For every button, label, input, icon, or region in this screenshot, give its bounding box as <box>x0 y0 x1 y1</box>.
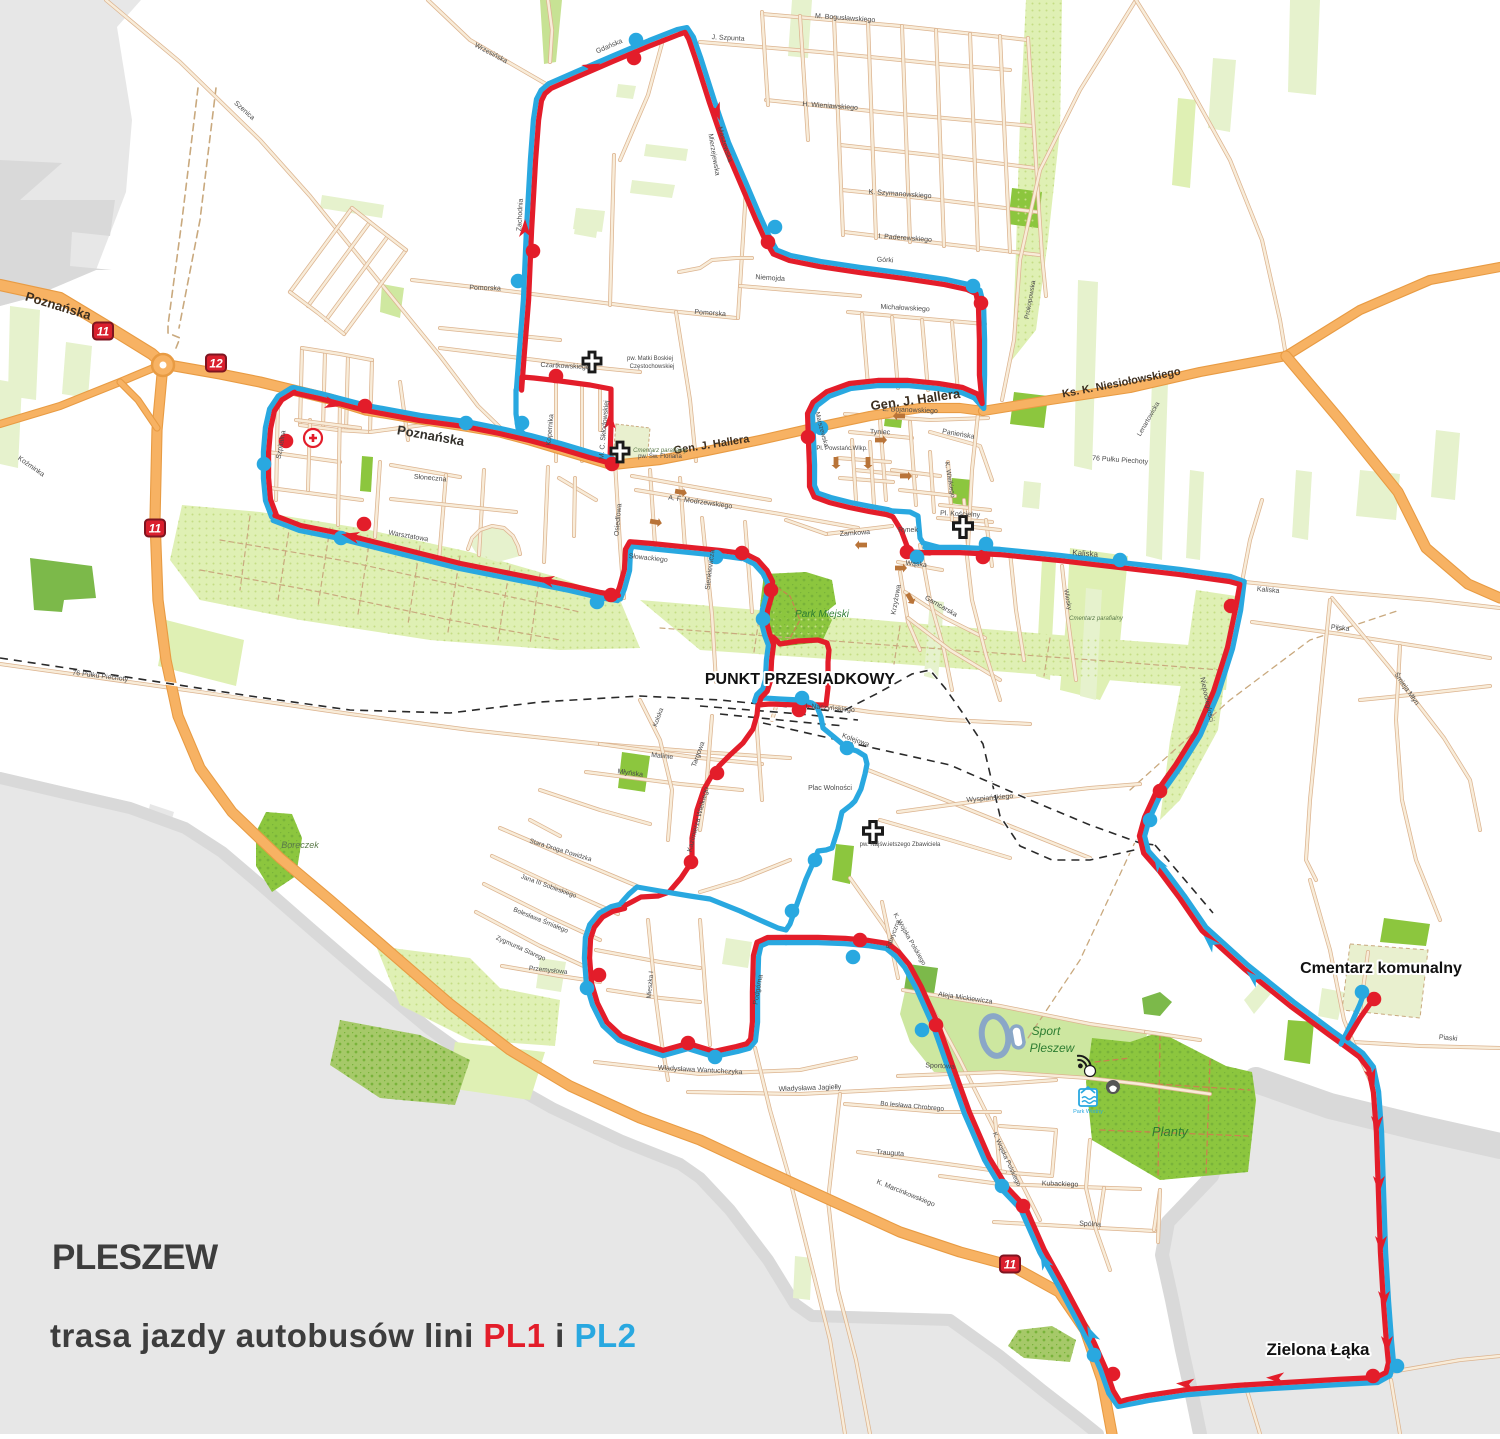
svg-text:Plac Wolności: Plac Wolności <box>808 785 852 792</box>
svg-text:Planty: Planty <box>1152 1124 1190 1139</box>
svg-text:Górki: Górki <box>877 257 895 265</box>
svg-text:Zielona Łąka: Zielona Łąka <box>1267 1340 1371 1359</box>
svg-text:11: 11 <box>149 522 162 536</box>
svg-text:Cmentarz komunalny: Cmentarz komunalny <box>1300 960 1462 977</box>
svg-text:Park Wodny: Park Wodny <box>1073 1109 1103 1115</box>
svg-text:11: 11 <box>1004 1258 1017 1272</box>
svg-text:Pleszew: Pleszew <box>1030 1041 1076 1055</box>
svg-text:trasa jazdy autobusów lini PL1: trasa jazdy autobusów lini PL1 i PL2 <box>50 1317 637 1354</box>
svg-text:Tyniec: Tyniec <box>870 429 891 437</box>
svg-text:PLESZEW: PLESZEW <box>52 1238 218 1277</box>
svg-text:pw. Najśw.ietszego Zbawiciela: pw. Najśw.ietszego Zbawiciela <box>860 842 941 848</box>
svg-text:Kubackiego: Kubackiego <box>1042 1180 1079 1188</box>
svg-text:Kaliska: Kaliska <box>1072 548 1099 559</box>
svg-text:pw. Św. Floriana: pw. Św. Floriana <box>638 452 682 460</box>
svg-text:12: 12 <box>209 357 223 371</box>
svg-text:Rynek: Rynek <box>898 527 918 534</box>
svg-text:Pomorska: Pomorska <box>469 284 501 292</box>
svg-text:PUNKT PRZESIADKOWY: PUNKT PRZESIADKOWY <box>705 671 896 688</box>
svg-text:Częstochowskiej: Częstochowskiej <box>630 364 675 370</box>
svg-text:Spólna: Spólna <box>1079 1220 1101 1228</box>
svg-text:Park Miejski: Park Miejski <box>795 609 850 620</box>
svg-text:Cmentarz parafialny: Cmentarz parafialny <box>1069 616 1124 622</box>
svg-text:11: 11 <box>97 325 110 339</box>
svg-text:Boreczek: Boreczek <box>281 840 319 850</box>
svg-text:Sport: Sport <box>1032 1024 1061 1038</box>
svg-text:pw. Matki Boskiej: pw. Matki Boskiej <box>627 356 673 362</box>
